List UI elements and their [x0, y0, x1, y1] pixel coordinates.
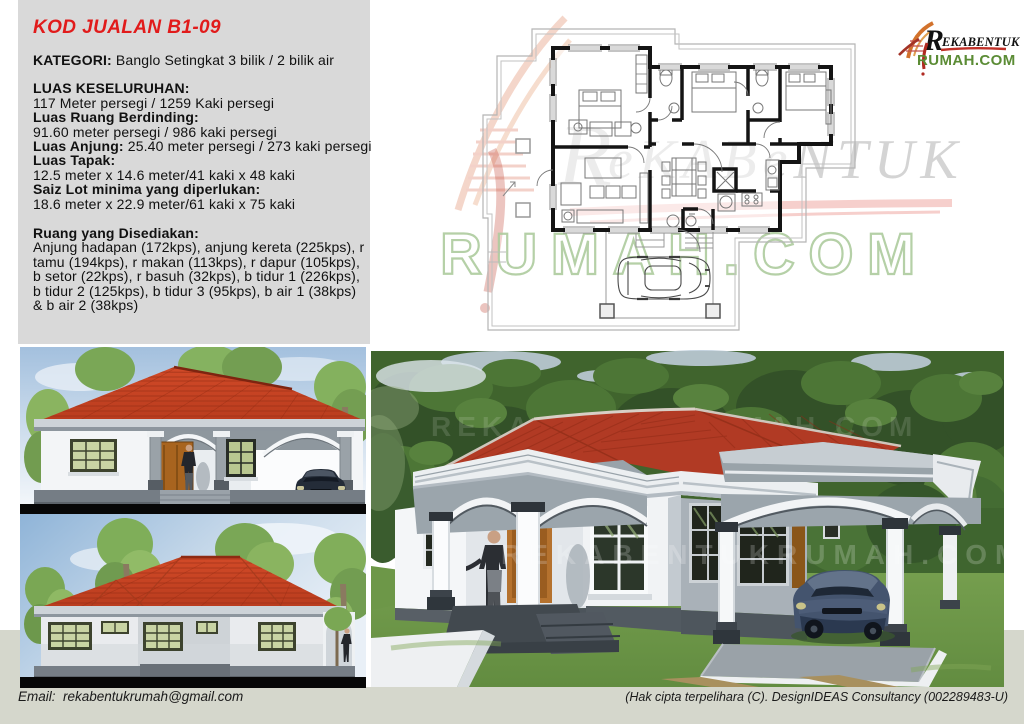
svg-text:RUMAH.COM: RUMAH.COM — [917, 52, 1016, 69]
svg-text:REKABENTUKRUMAH.COM: REKABENTUKRUMAH.COM — [501, 539, 1004, 570]
svg-text:EKABENTUK: EKABENTUK — [941, 35, 1021, 49]
